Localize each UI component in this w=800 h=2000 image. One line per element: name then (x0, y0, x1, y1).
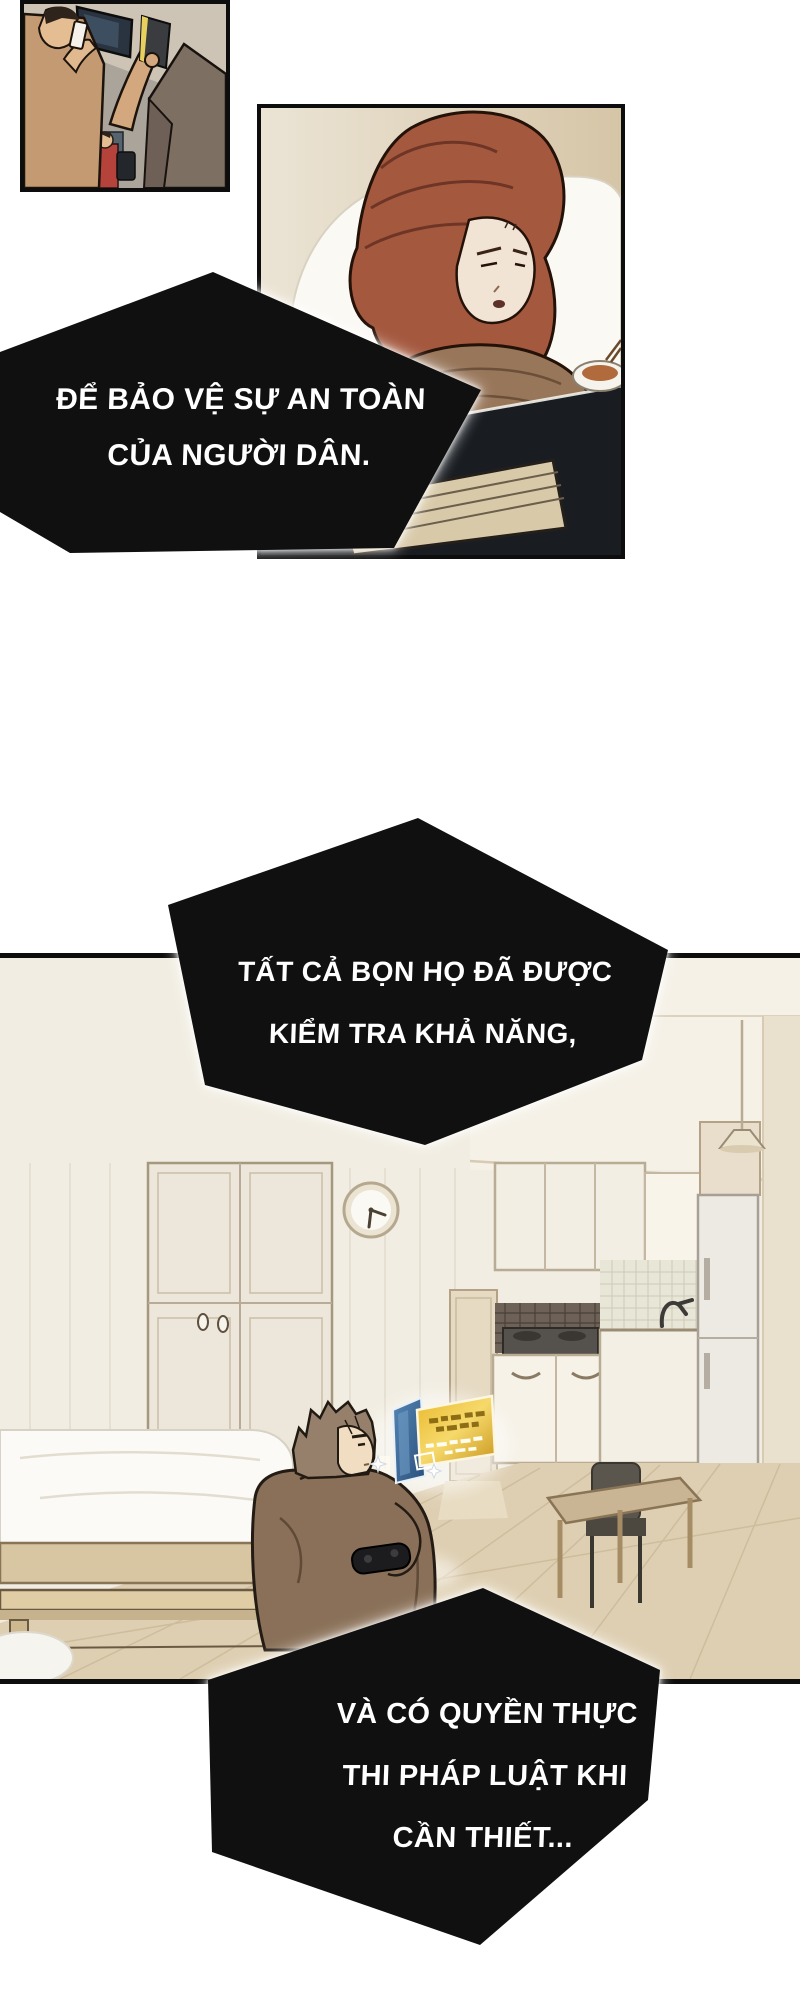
comic-page: ĐỂ BẢO VỆ SỰ AN TOÀN CỦA NGƯỜI DÂN. TẤT … (0, 0, 800, 2000)
fridge-handle (704, 1353, 710, 1389)
speech-line: ĐỂ BẢO VỆ SỰ AN TOÀN (10, 372, 472, 428)
panel-crowd-scene (20, 0, 230, 192)
chair-seat (586, 1518, 646, 1536)
narration-text: VÀ CÓ QUYỀN THỰC THI PHÁP LUẬT KHI CẦN T… (262, 1683, 708, 1869)
narration-text: ĐỂ BẢO VỆ SỰ AN TOÀN CỦA NGƯỜI DÂN. (8, 372, 472, 484)
boy-mouth (364, 1464, 369, 1465)
kitchen-window (645, 1173, 700, 1263)
speech-line: CẦN THIẾT... (262, 1807, 704, 1869)
phone-low (117, 152, 135, 180)
burner (558, 1331, 586, 1341)
boy-eyebrow (352, 1435, 367, 1437)
wardrobe-knob (218, 1316, 228, 1332)
fridge-handle (704, 1258, 710, 1300)
upper-cabinets (495, 1163, 645, 1270)
raised-hand (145, 53, 159, 67)
sink-cabinet (600, 1330, 700, 1463)
speech-line: CỦA NGƯỜI DÂN. (8, 428, 470, 484)
wardrobe-knob (198, 1314, 208, 1330)
right-wall (763, 1016, 800, 1468)
narration-text: TẤT CẢ BỌN HỌ ĐÃ ĐƯỢC KIỂM TRA KHẢ NĂNG, (162, 941, 686, 1065)
crowd-scene-art (24, 4, 226, 188)
speech-line: VÀ CÓ QUYỀN THỰC (266, 1683, 708, 1745)
speech-line: KIỂM TRA KHẢ NĂNG, (162, 1003, 684, 1065)
mattress (0, 1430, 293, 1550)
speech-line: THI PHÁP LUẬT KHI (264, 1745, 706, 1807)
speech-line: TẤT CẢ BỌN HỌ ĐÃ ĐƯỢC (164, 941, 686, 1003)
bowl-food (582, 365, 618, 381)
burner (513, 1331, 541, 1341)
fridge (698, 1195, 758, 1470)
hologram-glare (398, 1410, 410, 1476)
narration-bubble-1: ĐỂ BẢO VỆ SỰ AN TOÀN CỦA NGƯỜI DÂN. (0, 260, 500, 560)
narration-bubble-2: TẤT CẢ BỌN HỌ ĐÃ ĐƯỢC KIỂM TRA KHẢ NĂNG, (130, 805, 690, 1160)
narration-bubble-3: VÀ CÓ QUYỀN THỰC THI PHÁP LUẬT KHI CẦN T… (195, 1575, 670, 1960)
lamp-underside (720, 1145, 764, 1153)
wall-clock (344, 1183, 398, 1237)
gas-stove (503, 1328, 598, 1355)
boy-eye (358, 1444, 365, 1445)
